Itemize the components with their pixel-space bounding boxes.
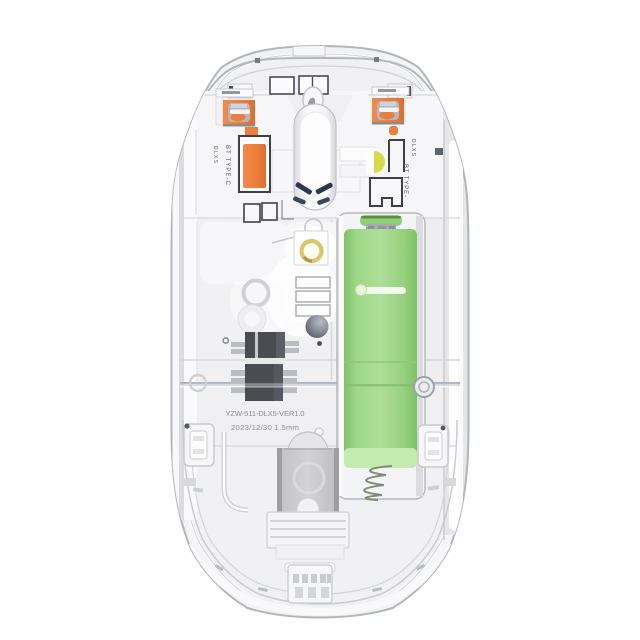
svg-text:DLXS: DLXS <box>410 139 416 157</box>
svg-text:2023/12/30 1.5mm: 2023/12/30 1.5mm <box>231 423 299 432</box>
svg-text:BT TYPE-: BT TYPE- <box>402 164 408 197</box>
svg-text:YZW-511-DLX5-VER1.0: YZW-511-DLX5-VER1.0 <box>226 409 305 418</box>
svg-text:DLXS: DLXS <box>212 146 218 164</box>
svg-text:BT TYPE-C: BT TYPE-C <box>224 145 230 186</box>
